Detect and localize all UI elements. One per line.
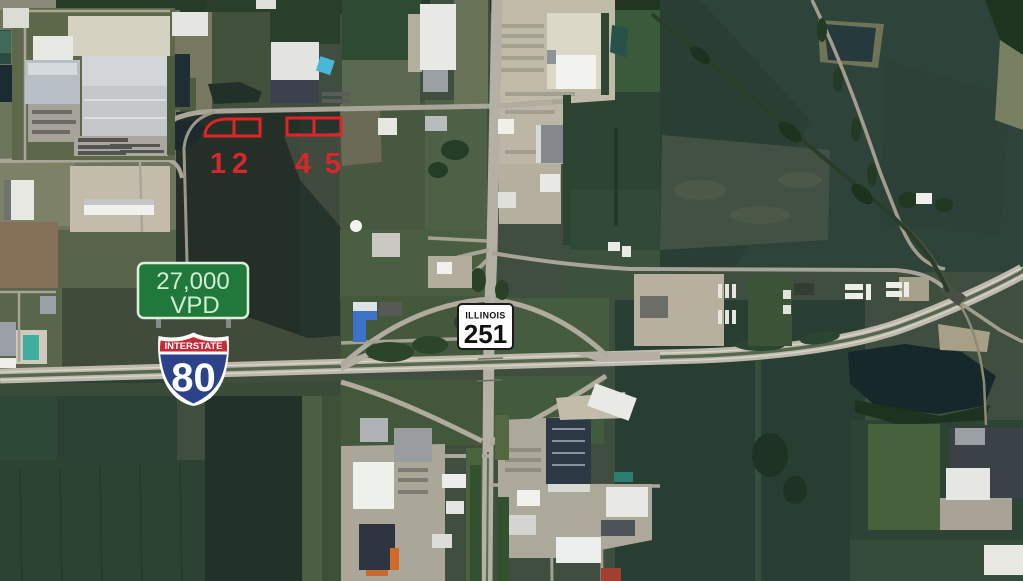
svg-text:251: 251 [464, 319, 507, 349]
svg-text:5: 5 [325, 148, 341, 180]
svg-text:INTERSTATE: INTERSTATE [165, 341, 223, 351]
svg-text:27,000: 27,000 [156, 268, 229, 295]
svg-text:80: 80 [171, 356, 216, 400]
svg-text:4: 4 [295, 148, 311, 180]
svg-text:VPD: VPD [170, 292, 219, 319]
svg-text:1: 1 [210, 148, 226, 180]
svg-text:2: 2 [232, 148, 248, 180]
